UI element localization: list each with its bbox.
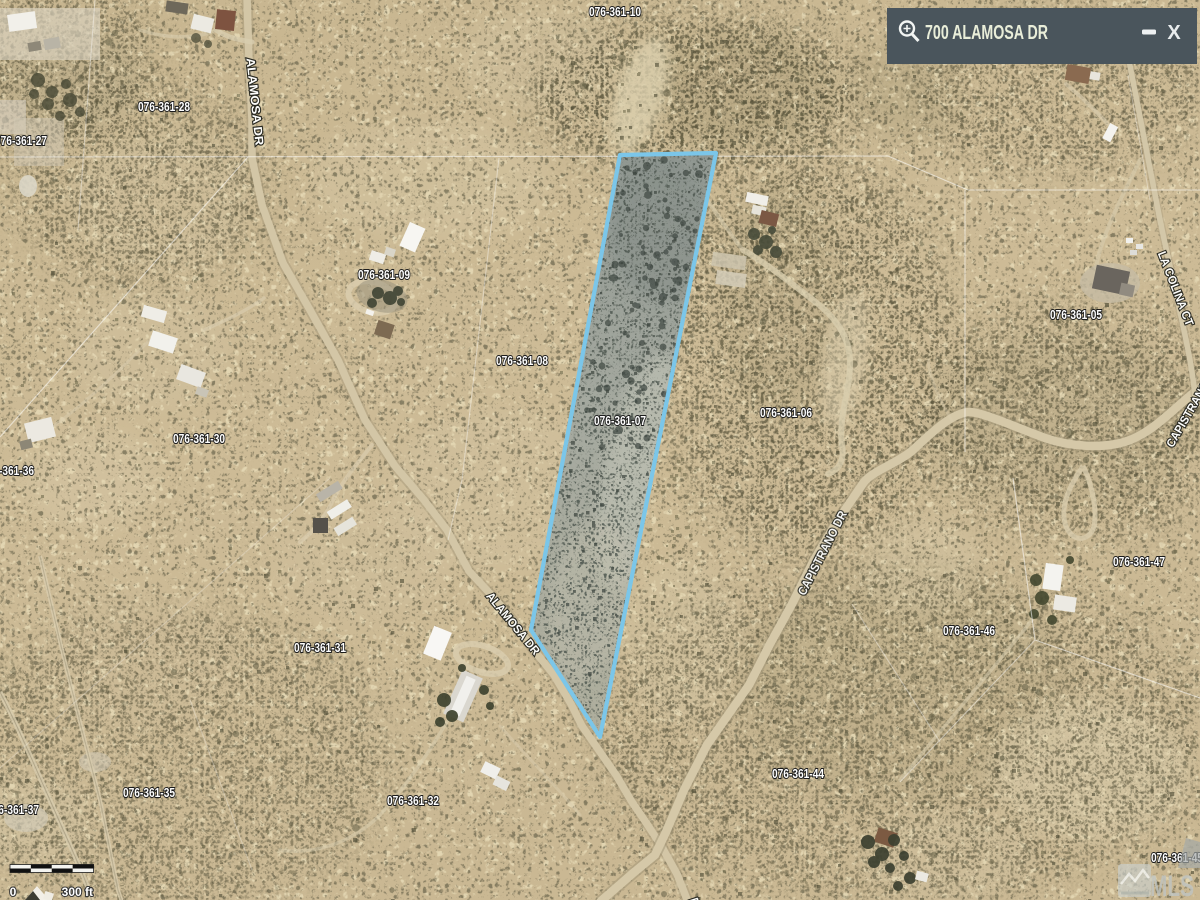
svg-text:076-361-09: 076-361-09 xyxy=(358,267,410,282)
svg-text:700 ALAMOSA DR: 700 ALAMOSA DR xyxy=(925,22,1048,44)
svg-text:076-361-35: 076-361-35 xyxy=(123,785,175,800)
svg-text:076-361-27: 076-361-27 xyxy=(0,133,47,148)
svg-text:076-361-44: 076-361-44 xyxy=(772,766,825,781)
svg-text:076-361-36: 076-361-36 xyxy=(0,463,34,478)
svg-text:076-361-46: 076-361-46 xyxy=(943,623,995,638)
svg-text:0: 0 xyxy=(10,885,17,899)
svg-text:076-361-08: 076-361-08 xyxy=(496,353,548,368)
svg-text:076-361-28: 076-361-28 xyxy=(138,99,190,114)
svg-text:076-361-32: 076-361-32 xyxy=(387,793,439,808)
svg-text:X: X xyxy=(1167,22,1181,44)
svg-text:MLS: MLS xyxy=(1150,870,1194,900)
svg-text:076-361-31: 076-361-31 xyxy=(294,640,346,655)
svg-text:076-361-37: 076-361-37 xyxy=(0,802,39,817)
svg-text:076-361-10: 076-361-10 xyxy=(589,4,641,19)
svg-text:076-361-30: 076-361-30 xyxy=(173,431,225,446)
svg-text:300 ft: 300 ft xyxy=(62,885,93,899)
svg-text:076-361-07: 076-361-07 xyxy=(594,413,646,428)
svg-text:076-361-47: 076-361-47 xyxy=(1113,554,1165,569)
svg-text:076-361-06: 076-361-06 xyxy=(760,405,812,420)
svg-text:076-361-05: 076-361-05 xyxy=(1050,307,1102,322)
